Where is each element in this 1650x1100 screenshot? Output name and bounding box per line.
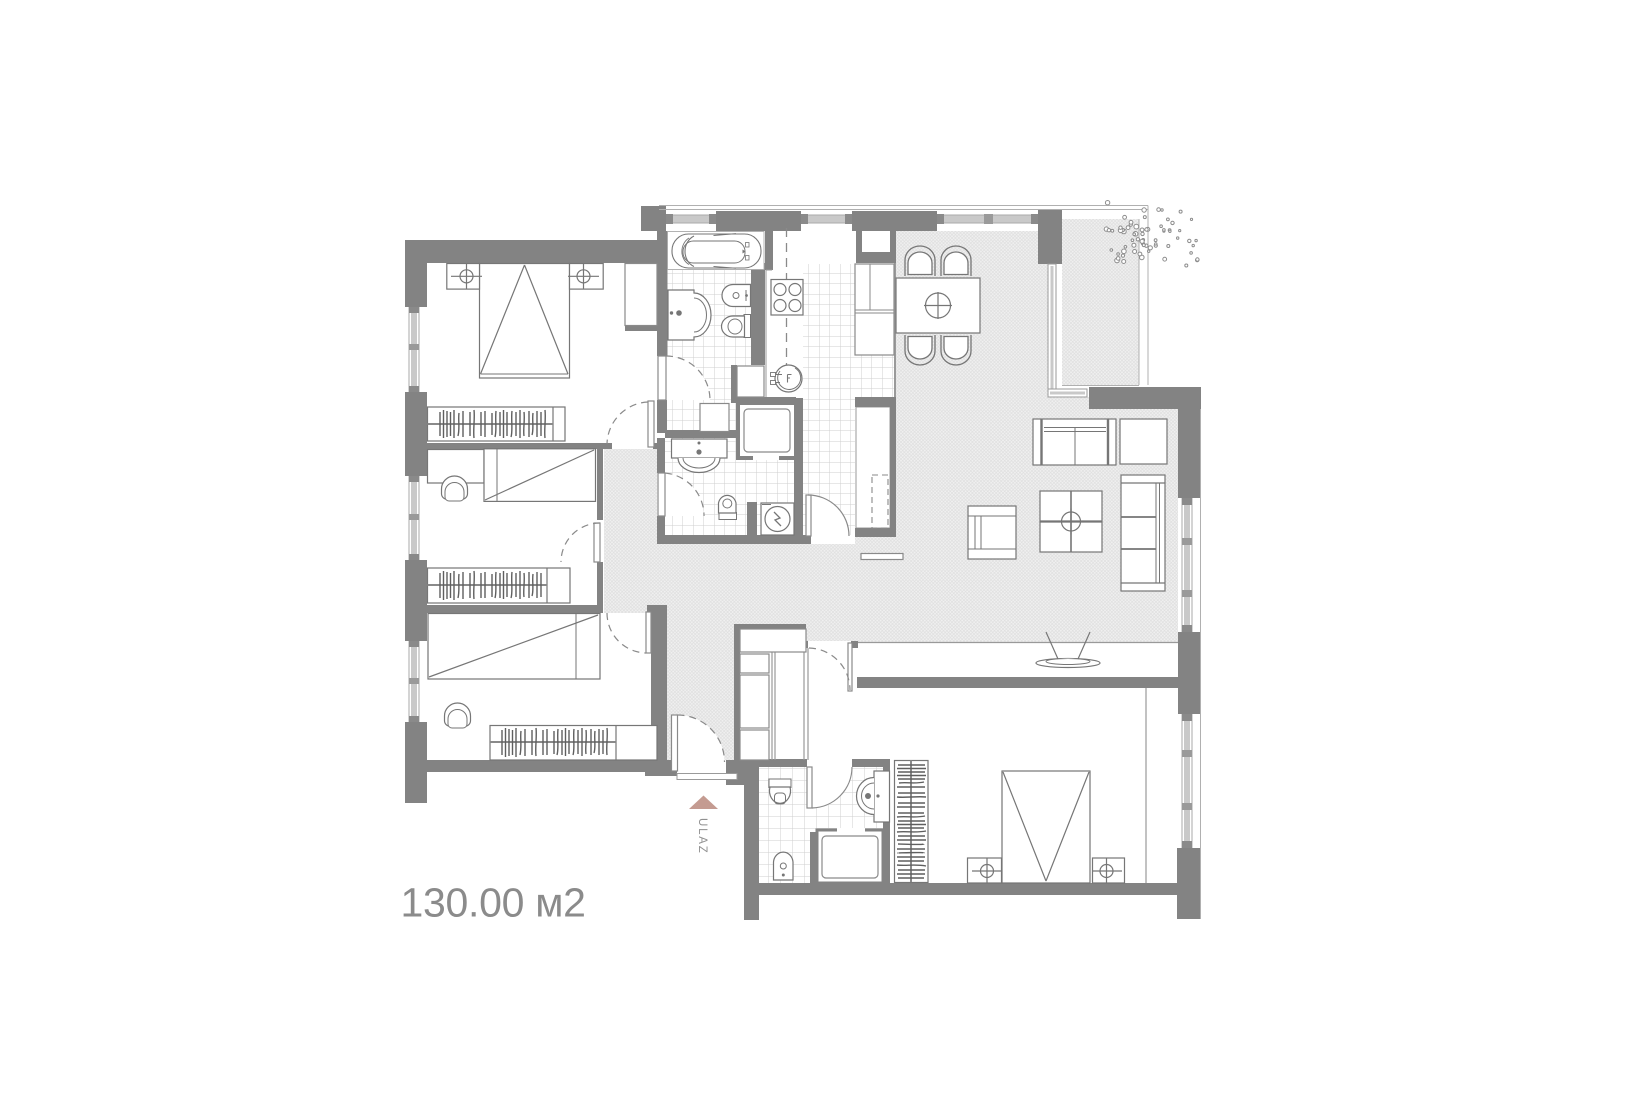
svg-text:130.00 м2: 130.00 м2 xyxy=(401,880,586,926)
svg-text:ULAZ: ULAZ xyxy=(696,818,708,855)
